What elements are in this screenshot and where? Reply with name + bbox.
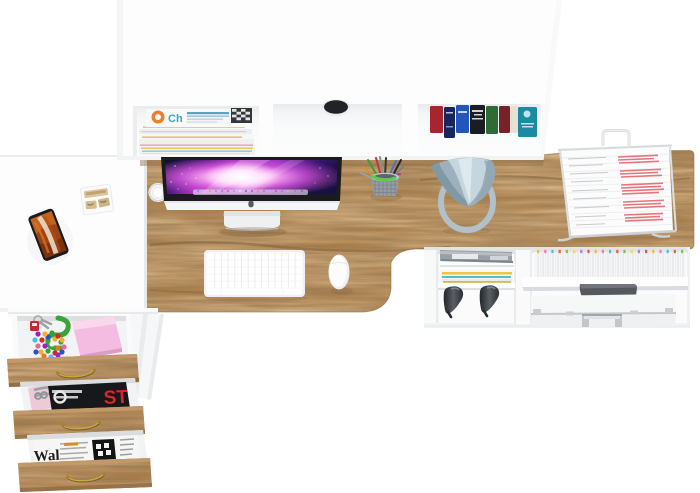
svg-text:ST: ST xyxy=(103,387,129,409)
svg-text:Ch: Ch xyxy=(168,113,183,125)
